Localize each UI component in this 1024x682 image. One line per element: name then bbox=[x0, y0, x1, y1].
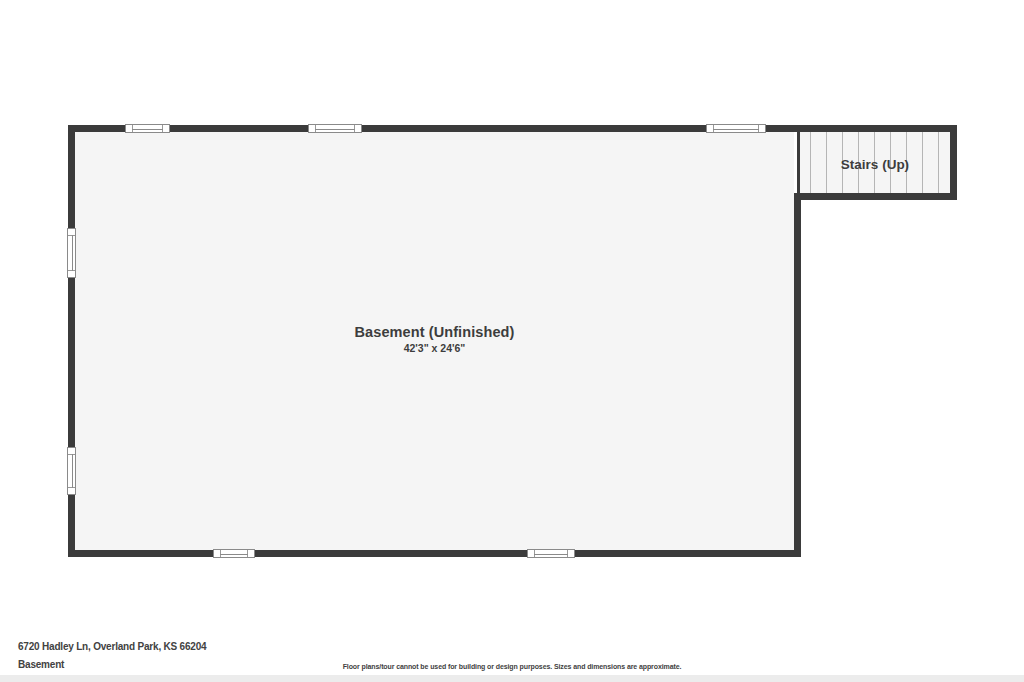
wall-right bbox=[794, 193, 801, 557]
room-label-block: Basement (Unfinished) 42'3" x 24'6" bbox=[75, 324, 794, 355]
room-dimensions: 42'3" x 24'6" bbox=[75, 341, 794, 355]
footer-divider-bar bbox=[0, 675, 1024, 682]
disclaimer-text: Floor plans/tour cannot be used for buil… bbox=[0, 663, 1024, 670]
window-icon bbox=[213, 549, 255, 558]
floorplan-canvas: Basement (Unfinished) 42'3" x 24'6" Stai… bbox=[0, 0, 1024, 682]
stairs-wall-bottom bbox=[794, 193, 957, 200]
stairs-wall-right bbox=[950, 125, 957, 200]
window-icon bbox=[706, 124, 766, 133]
window-icon bbox=[67, 228, 76, 278]
window-icon bbox=[308, 124, 362, 133]
stairs-label: Stairs (Up) bbox=[800, 157, 950, 172]
wall-bottom bbox=[68, 550, 801, 557]
property-address: 6720 Hadley Ln, Overland Park, KS 66204 bbox=[18, 641, 206, 652]
room-name: Basement (Unfinished) bbox=[75, 324, 794, 340]
window-icon bbox=[67, 447, 76, 495]
window-icon bbox=[527, 549, 575, 558]
wall-top bbox=[68, 125, 957, 132]
window-icon bbox=[125, 124, 170, 133]
